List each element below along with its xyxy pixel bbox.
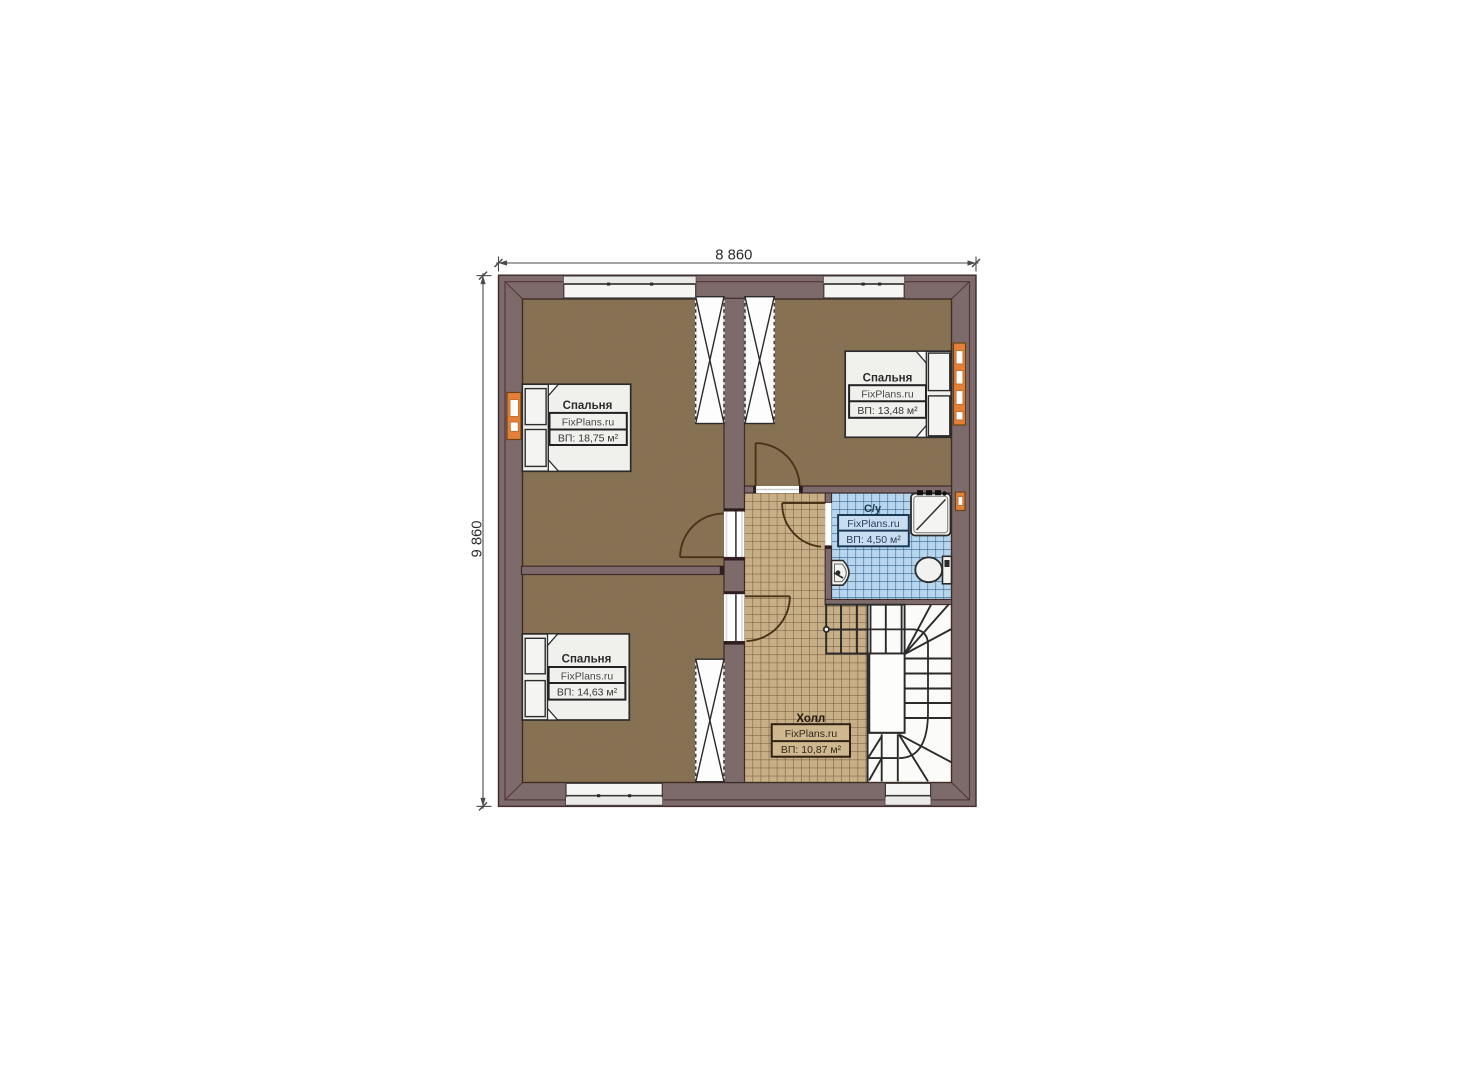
svg-text:С/у: С/у xyxy=(864,503,882,515)
svg-text:ВП: 10,87 м²: ВП: 10,87 м² xyxy=(781,744,842,756)
svg-text:ВП: 14,63 м²: ВП: 14,63 м² xyxy=(557,687,618,699)
svg-text:Спальня: Спальня xyxy=(563,400,613,412)
svg-text:FixPlans.ru: FixPlans.ru xyxy=(785,728,838,740)
svg-text:FixPlans.ru: FixPlans.ru xyxy=(561,670,614,682)
svg-text:ВП: 18,75 м²: ВП: 18,75 м² xyxy=(558,433,619,445)
svg-text:FixPlans.ru: FixPlans.ru xyxy=(562,417,615,429)
svg-text:ВП: 13,48 м²: ВП: 13,48 м² xyxy=(857,405,918,417)
svg-text:FixPlans.ru: FixPlans.ru xyxy=(847,518,900,530)
svg-text:9 860: 9 860 xyxy=(470,520,486,557)
svg-text:8 860: 8 860 xyxy=(715,247,752,263)
svg-text:Спальня: Спальня xyxy=(863,373,913,385)
svg-text:Спальня: Спальня xyxy=(562,654,612,666)
svg-text:ВП: 4,50 м²: ВП: 4,50 м² xyxy=(846,534,901,546)
svg-text:FixPlans.ru: FixPlans.ru xyxy=(861,389,914,401)
